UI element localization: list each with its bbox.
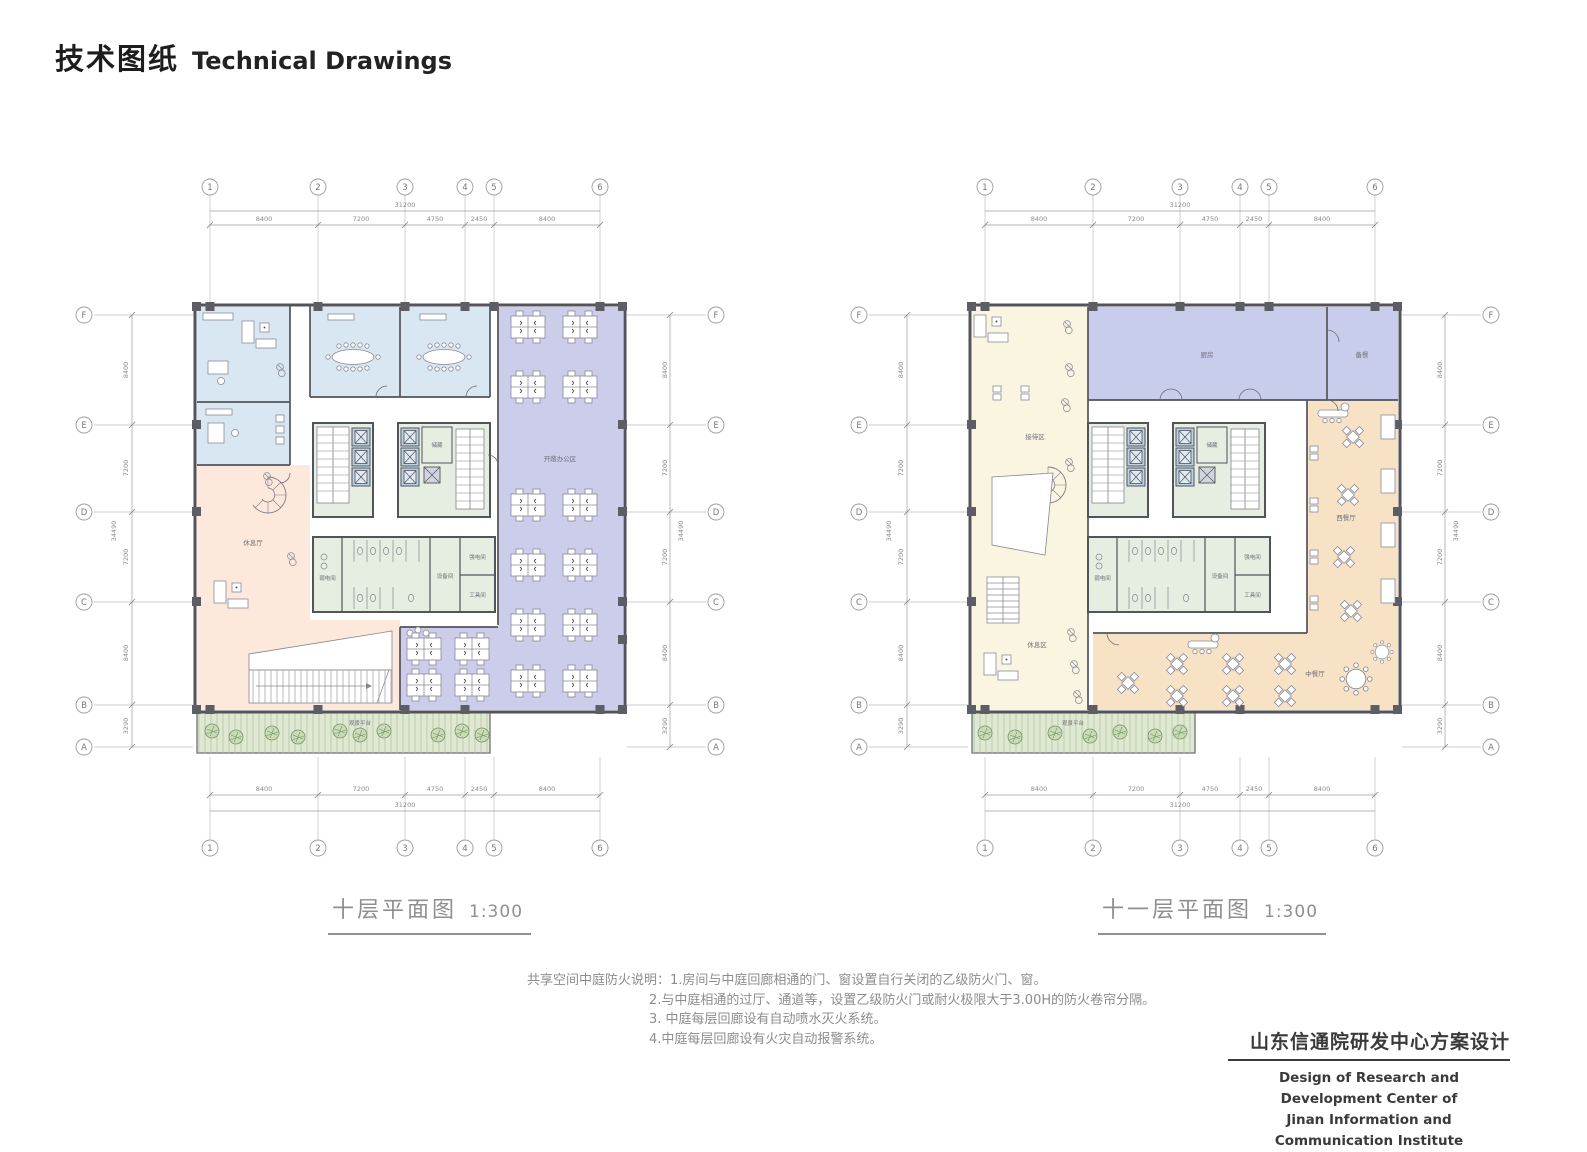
label-reception: 接待区	[1025, 432, 1045, 441]
svg-text:C: C	[81, 598, 87, 608]
svg-text:4750: 4750	[1202, 215, 1219, 223]
label-lounge: 休息区	[1027, 640, 1047, 649]
svg-text:E: E	[1488, 421, 1493, 431]
svg-text:7200: 7200	[661, 549, 669, 566]
svg-text:7200: 7200	[353, 785, 370, 793]
svg-text:7200: 7200	[1128, 785, 1145, 793]
core-a	[313, 423, 373, 517]
svg-text:34490: 34490	[885, 521, 893, 542]
svg-text:C: C	[856, 598, 862, 608]
label-western-restaurant: 西餐厅	[1336, 513, 1356, 522]
svg-text:A: A	[1488, 743, 1494, 753]
svg-text:A: A	[856, 743, 862, 753]
svg-text:7200: 7200	[897, 460, 905, 477]
svg-text:3290: 3290	[1436, 718, 1444, 735]
plan-caption-10-scale: 1:300	[469, 902, 523, 922]
svg-text:3: 3	[1177, 183, 1182, 193]
svg-text:31200: 31200	[395, 201, 416, 209]
svg-text:7200: 7200	[122, 460, 130, 477]
svg-text:E: E	[713, 421, 718, 431]
svg-text:1: 1	[207, 844, 212, 854]
svg-text:D: D	[713, 508, 720, 518]
sheet-title-en: Technical Drawings	[192, 47, 452, 75]
svg-text:2450: 2450	[1246, 785, 1263, 793]
svg-text:B: B	[713, 701, 719, 711]
svg-text:8400: 8400	[1314, 785, 1331, 793]
project-title-en-1: Design of Research and Development Cente…	[1228, 1068, 1510, 1110]
svg-text:6: 6	[1372, 183, 1377, 193]
svg-text:31200: 31200	[1170, 801, 1191, 809]
floor-plan-10: 31200 84007200 47502450 8400 84007200 47…	[40, 165, 750, 865]
service-block	[313, 537, 495, 612]
building-11f: 观景平台	[967, 302, 1402, 753]
svg-text:1: 1	[982, 183, 987, 193]
svg-text:7200: 7200	[661, 460, 669, 477]
svg-text:D: D	[1488, 508, 1495, 518]
svg-text:7200: 7200	[353, 215, 370, 223]
plan-caption-11-name: 十一层平面图	[1102, 898, 1252, 923]
plan-caption-10: 十层平面图1:300	[328, 892, 531, 935]
svg-text:5: 5	[1266, 183, 1271, 193]
svg-text:F: F	[1489, 311, 1494, 321]
svg-text:1: 1	[982, 844, 987, 854]
label-lounge-hall: 休息厅	[243, 538, 263, 547]
terrace: 观景平台	[972, 712, 1195, 753]
svg-text:3290: 3290	[661, 718, 669, 735]
svg-text:8400: 8400	[122, 362, 130, 379]
svg-text:2450: 2450	[1246, 215, 1263, 223]
svg-text:8400: 8400	[661, 362, 669, 379]
project-title-zh: 山东信通院研发中心方案设计	[1228, 1027, 1510, 1054]
svg-text:3: 3	[402, 183, 407, 193]
note-line-4: 4.中庭每层回廊设有火灾自动报警系统。	[649, 1030, 1155, 1050]
note-line-1: 共享空间中庭防火说明：1.房间与中庭回廊相通的门、窗设置自行关闭的乙级防火门、窗…	[527, 971, 1155, 991]
plan-caption-11-scale: 1:300	[1264, 902, 1318, 922]
title-block-rule	[1228, 1059, 1510, 1061]
note-line-3: 3. 中庭每层回廊设有自动喷水灭火系统。	[649, 1010, 1155, 1030]
title-block: 山东信通院研发中心方案设计 Design of Research and Dev…	[1228, 1027, 1510, 1152]
core-b	[398, 423, 490, 517]
stair-flight	[987, 577, 1019, 623]
svg-text:8400: 8400	[897, 645, 905, 662]
svg-text:7200: 7200	[122, 549, 130, 566]
svg-text:3: 3	[402, 844, 407, 854]
svg-text:A: A	[713, 743, 719, 753]
svg-text:4750: 4750	[427, 785, 444, 793]
fire-protection-notes: 共享空间中庭防火说明：1.房间与中庭回廊相通的门、窗设置自行关闭的乙级防火门、窗…	[527, 971, 1155, 1049]
label-kitchen: 厨房	[1201, 350, 1214, 359]
svg-text:A: A	[81, 743, 87, 753]
floor-plan-11: 31200 84007200 47502450 8400 84007200 47…	[815, 165, 1525, 865]
svg-text:8400: 8400	[661, 645, 669, 662]
svg-text:2450: 2450	[471, 215, 488, 223]
label-chinese-restaurant: 中餐厅	[1305, 669, 1325, 678]
svg-text:3290: 3290	[897, 718, 905, 735]
core-b	[1173, 423, 1265, 517]
svg-text:31200: 31200	[1170, 201, 1191, 209]
svg-text:3290: 3290	[122, 718, 130, 735]
svg-text:3: 3	[1177, 844, 1182, 854]
svg-text:F: F	[82, 311, 87, 321]
svg-text:D: D	[81, 508, 88, 518]
svg-text:8400: 8400	[1436, 645, 1444, 662]
svg-text:F: F	[857, 311, 862, 321]
label-pantry: 备餐	[1356, 350, 1370, 359]
svg-text:7200: 7200	[1436, 460, 1444, 477]
svg-text:34490: 34490	[677, 521, 685, 542]
svg-text:F: F	[714, 311, 719, 321]
svg-text:8400: 8400	[1031, 215, 1048, 223]
svg-text:8400: 8400	[256, 785, 273, 793]
sheet-title: 技术图纸 Technical Drawings	[55, 36, 452, 78]
svg-text:8400: 8400	[256, 215, 273, 223]
plan-caption-10-name: 十层平面图	[332, 898, 457, 923]
svg-text:4: 4	[462, 844, 467, 854]
svg-text:2450: 2450	[471, 785, 488, 793]
svg-text:C: C	[1488, 598, 1494, 608]
plan-caption-11: 十一层平面图1:300	[1098, 892, 1326, 935]
svg-text:8400: 8400	[539, 215, 556, 223]
project-title-en-2: Jinan Information and Communication Inst…	[1228, 1110, 1510, 1152]
svg-text:8400: 8400	[1314, 215, 1331, 223]
svg-text:2: 2	[1090, 844, 1095, 854]
svg-text:7200: 7200	[1128, 215, 1145, 223]
svg-text:7200: 7200	[897, 549, 905, 566]
terrace: 观景平台	[197, 712, 490, 753]
label-terrace: 观景平台	[1062, 719, 1085, 727]
svg-text:E: E	[81, 421, 86, 431]
svg-text:4: 4	[462, 183, 467, 193]
service-block	[1088, 537, 1270, 612]
label-terrace: 观景平台	[349, 719, 372, 727]
svg-text:2: 2	[1090, 183, 1095, 193]
svg-text:8400: 8400	[1436, 362, 1444, 379]
svg-text:8400: 8400	[897, 362, 905, 379]
svg-text:34490: 34490	[1452, 521, 1460, 542]
core-a	[1088, 423, 1148, 517]
svg-text:4: 4	[1237, 844, 1242, 854]
svg-text:4750: 4750	[427, 215, 444, 223]
svg-text:4: 4	[1237, 183, 1242, 193]
svg-text:5: 5	[1266, 844, 1271, 854]
svg-text:D: D	[856, 508, 863, 518]
svg-text:1: 1	[207, 183, 212, 193]
svg-text:B: B	[856, 701, 862, 711]
svg-text:34490: 34490	[110, 521, 118, 542]
svg-text:31200: 31200	[395, 801, 416, 809]
sheet-title-zh: 技术图纸	[55, 36, 179, 78]
svg-text:8400: 8400	[1031, 785, 1048, 793]
note-prefix: 共享空间中庭防火说明：	[527, 973, 670, 988]
building-10f: 观景平台	[192, 302, 627, 753]
svg-text:8400: 8400	[122, 645, 130, 662]
svg-text:6: 6	[597, 844, 602, 854]
svg-text:7200: 7200	[1436, 549, 1444, 566]
svg-text:C: C	[713, 598, 719, 608]
note-line-2: 2.与中庭相通的过厅、通道等，设置乙级防火门或耐火极限大于3.00H的防火卷帘分…	[649, 991, 1155, 1011]
svg-text:5: 5	[491, 183, 496, 193]
svg-text:6: 6	[1372, 844, 1377, 854]
svg-text:2: 2	[315, 183, 320, 193]
svg-text:8400: 8400	[539, 785, 556, 793]
svg-text:4750: 4750	[1202, 785, 1219, 793]
svg-text:5: 5	[491, 844, 496, 854]
label-open-office: 开敞办公区	[544, 454, 577, 463]
svg-text:6: 6	[597, 183, 602, 193]
svg-text:B: B	[81, 701, 87, 711]
svg-text:B: B	[1488, 701, 1494, 711]
svg-text:E: E	[856, 421, 861, 431]
svg-text:2: 2	[315, 844, 320, 854]
